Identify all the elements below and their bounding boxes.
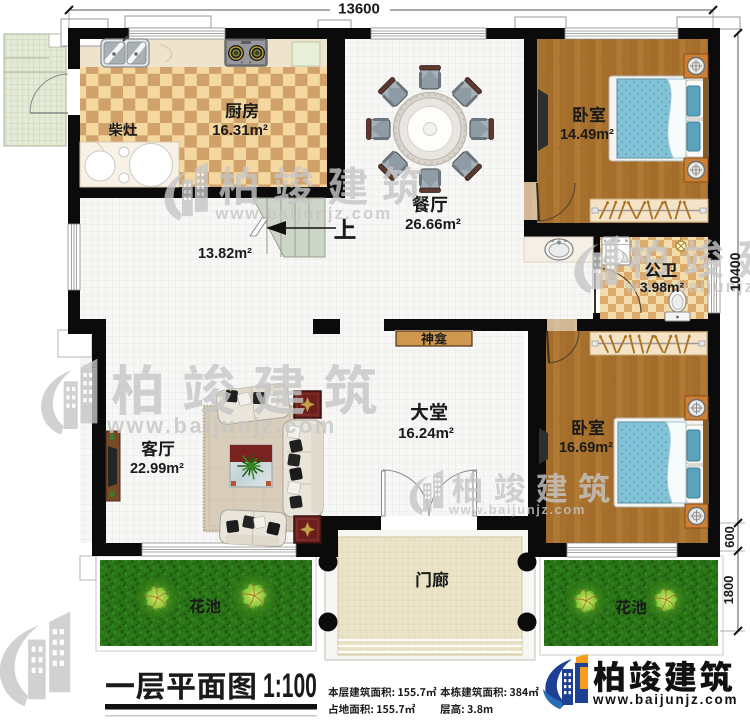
svg-text:16.24m²: 16.24m² [398,425,454,442]
svg-text:22.99m²: 22.99m² [130,461,184,477]
svg-text:www.baijunjz.com: www.baijunjz.com [214,204,392,223]
svg-text:www.baijunjz.com: www.baijunjz.com [448,502,586,517]
svg-text:26.66m²: 26.66m² [405,216,461,233]
svg-text:13600: 13600 [338,1,380,18]
svg-text:16.31m²: 16.31m² [212,122,268,139]
svg-text:www.baijunjz.com: www.baijunjz.com [592,692,738,707]
svg-text:13.82m²: 13.82m² [198,246,252,262]
svg-text:16.69m²: 16.69m² [559,440,613,456]
svg-text:14.49m²: 14.49m² [560,127,614,143]
svg-text:1:100: 1:100 [263,666,317,704]
svg-text:3.98m²: 3.98m² [640,279,685,295]
svg-text:www.baijunjz.com: www.baijunjz.com [106,413,337,438]
